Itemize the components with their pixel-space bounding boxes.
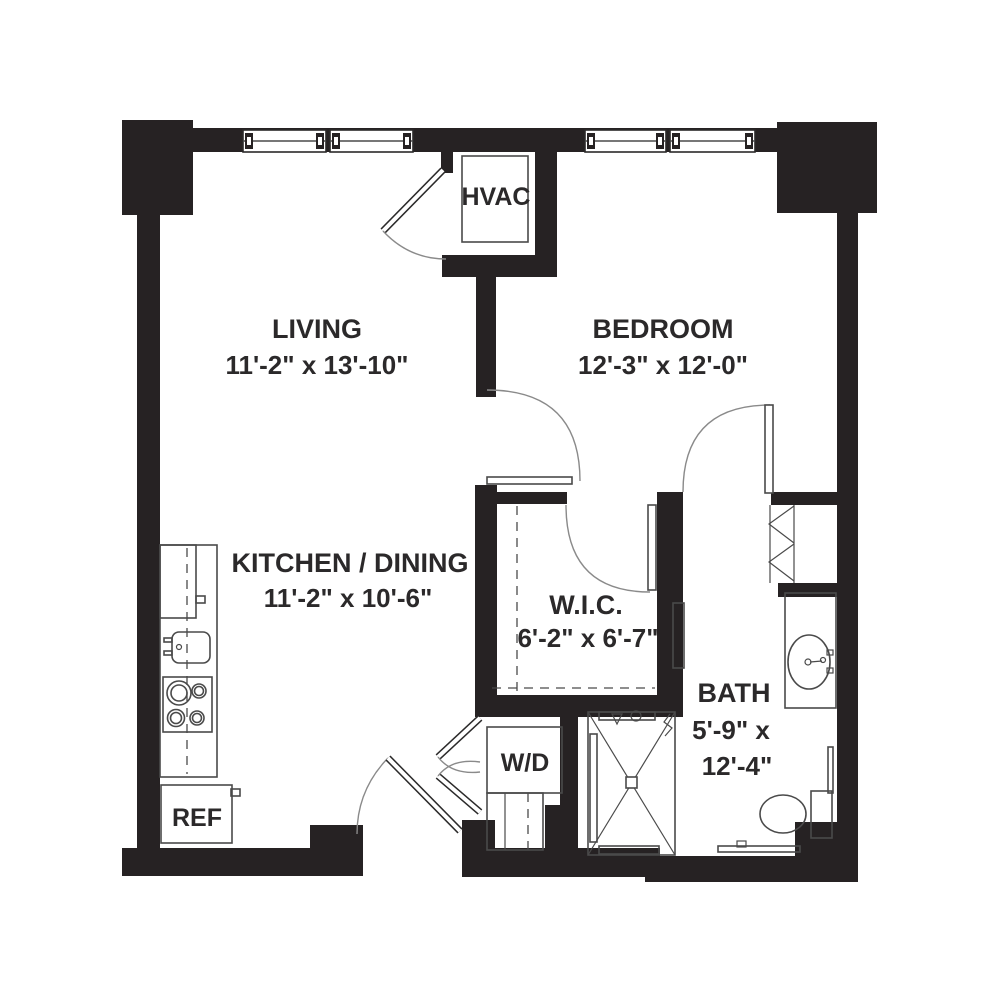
wic-label: W.I.C. (549, 590, 623, 620)
bedroom-label: BEDROOM (593, 314, 734, 344)
bath-door (683, 405, 773, 493)
kitchen-label: KITCHEN / DINING (231, 548, 468, 578)
kitchen-fixtures (160, 545, 240, 843)
wall-wic-left (475, 485, 497, 717)
wd-bifold-doors (438, 718, 480, 812)
bedroom-door (487, 390, 580, 484)
wall-right (837, 213, 858, 878)
wall-bottom-left (122, 848, 363, 876)
wall-wd-stub (545, 805, 578, 877)
stove (163, 677, 212, 732)
wall-corner-top-left (122, 120, 193, 215)
grab-bar (828, 747, 833, 793)
wd-label: W/D (501, 749, 550, 777)
bedroom-window (585, 130, 755, 152)
shower-bench (590, 734, 597, 842)
vanity (785, 593, 836, 708)
floor-plan: LIVING 11'-2" x 13'-10" BEDROOM 12'-3" x… (0, 0, 1000, 1000)
shower-supply (664, 714, 672, 736)
dishwasher-handle (196, 596, 205, 603)
bath-dims-1: 5'-9" x (692, 715, 770, 745)
wall-entry-step (310, 825, 363, 849)
ref-label: REF (172, 804, 222, 832)
floor-plan-svg: LIVING 11'-2" x 13'-10" BEDROOM 12'-3" x… (0, 0, 1000, 1000)
wall-living-bedroom-divider (476, 277, 496, 397)
linen-closet (769, 505, 794, 583)
wall-corner-top-right (777, 122, 877, 213)
towel-bar (718, 846, 800, 852)
bedroom-dims: 12'-3" x 12'-0" (578, 350, 748, 380)
wic-dims: 6'-2" x 6'-7" (517, 623, 658, 653)
wall-wic-top (490, 492, 567, 504)
wall-left (137, 215, 160, 848)
dishwasher (160, 545, 196, 618)
kitchen-dims: 11'-2" x 10'-6" (264, 583, 433, 613)
bath-dims-2: 12'-4" (702, 751, 773, 781)
bath-label: BATH (698, 678, 771, 708)
shower (588, 711, 675, 855)
wic-door (566, 505, 656, 592)
hvac-label: HVAC (462, 183, 531, 211)
wall-bath-top (771, 492, 837, 505)
living-label: LIVING (272, 314, 362, 344)
wall-bottom-bath (645, 856, 858, 882)
wall-top (122, 128, 877, 152)
wall-wic-right (657, 492, 683, 717)
hvac-door (383, 170, 446, 259)
wall-wic-bottom (475, 695, 677, 717)
living-dims: 11'-2" x 13'-10" (225, 350, 408, 380)
wall-hvac-bottom (442, 255, 557, 277)
wd-lower-cabinet (487, 793, 543, 850)
wall-linen-stub (778, 583, 838, 597)
shower-drain (626, 777, 637, 788)
